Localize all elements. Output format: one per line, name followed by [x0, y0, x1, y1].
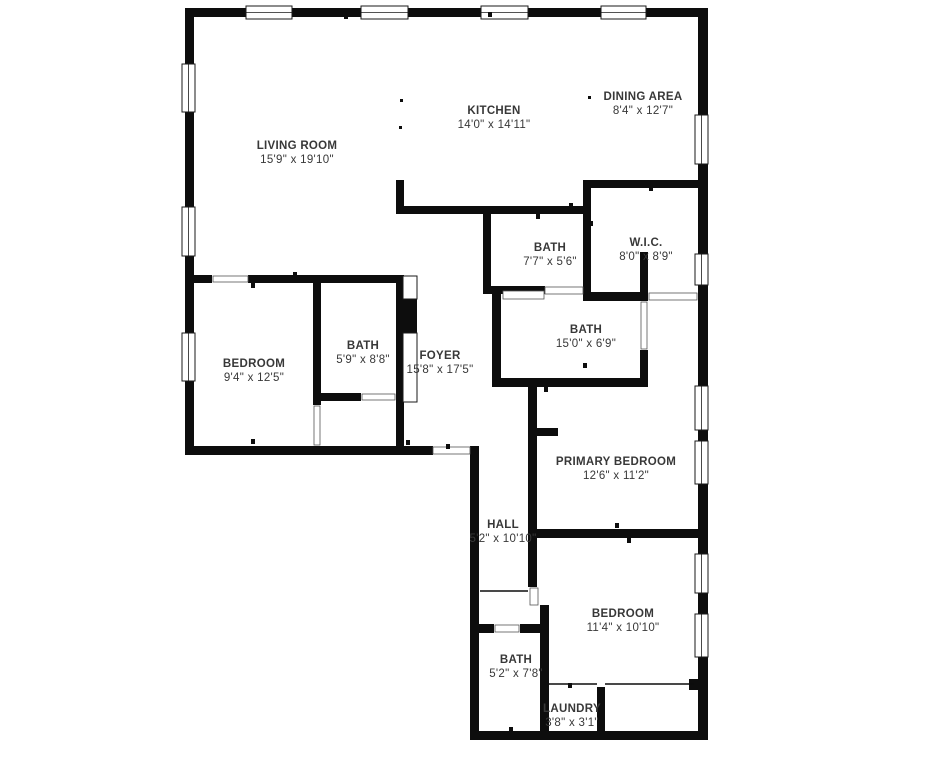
floor-plan-drawing: LIVING ROOM15'9" x 19'10"KITCHEN14'0" x …: [0, 0, 945, 768]
wall-tick: [583, 363, 587, 368]
room-label-foyer: FOYER: [419, 350, 461, 362]
room-dimensions-dining-area: 8'4" x 12'7": [613, 105, 673, 117]
column-dot: [588, 96, 591, 99]
room-dimensions-wic: 8'0" x 8'9": [619, 251, 673, 263]
wall-tick: [569, 203, 573, 208]
wall-segment: [470, 731, 708, 740]
wall-segment: [640, 350, 648, 387]
room-label-bedroom-bottom: BEDROOM: [592, 608, 654, 620]
door-opening: [641, 302, 647, 349]
wall-tick: [406, 440, 410, 445]
wall-tick: [589, 221, 593, 226]
room-dimensions-primary-bedroom: 12'6" x 11'2": [583, 470, 649, 482]
room-dimensions-hall: 5'2" x 10'10": [470, 533, 537, 545]
closet-panel: [403, 276, 417, 299]
wall-segment: [583, 292, 648, 301]
room-label-bath-bottom: BATH: [500, 654, 532, 666]
room-dimensions-bath-bottom: 5'2" x 7'8": [489, 668, 543, 680]
door-opening: [362, 394, 395, 400]
door-opening: [433, 447, 470, 454]
wall-segment: [185, 275, 212, 283]
room-dimensions-bedroom-left: 9'4" x 12'5": [224, 372, 284, 384]
door-opening: [314, 406, 320, 445]
wall-tick: [568, 683, 572, 688]
door-opening: [503, 291, 544, 299]
room-dimensions-bath-left: 5'9" x 8'8": [336, 354, 390, 366]
door-opening: [649, 293, 697, 300]
wall-tick: [474, 647, 478, 652]
room-dimensions-bath-middle: 15'0" x 6'9": [556, 338, 616, 350]
wall-tick: [251, 439, 255, 444]
room-label-bath-left: BATH: [347, 340, 379, 352]
wall-tick: [251, 283, 255, 288]
wall-tick: [649, 186, 653, 191]
room-dimensions-bedroom-bottom: 11'4" x 10'10": [587, 622, 660, 634]
room-label-wic: W.I.C.: [629, 237, 662, 249]
wall-tick: [627, 538, 631, 543]
wall-segment: [528, 538, 537, 587]
wall-tick: [189, 124, 193, 129]
door-opening: [495, 625, 519, 632]
room-label-hall: HALL: [487, 519, 519, 531]
room-label-laundry: LAUNDRY: [543, 703, 601, 715]
wall-segment: [313, 393, 361, 401]
wall-segment: [520, 624, 549, 633]
wall-segment: [248, 275, 404, 283]
floor-plan-page: LIVING ROOM15'9" x 19'10"KITCHEN14'0" x …: [0, 0, 945, 768]
room-dimensions-laundry: 3'8" x 3'1": [545, 717, 599, 729]
wall-segment: [492, 288, 501, 387]
wall-segment: [396, 206, 591, 214]
room-label-dining-area: DINING AREA: [604, 91, 683, 103]
wall-segment: [492, 378, 648, 387]
wall-segment: [583, 180, 708, 188]
wall-segment: [470, 624, 494, 633]
wall-segment: [528, 529, 708, 538]
wall-segment: [185, 446, 433, 455]
column-dot: [400, 99, 403, 102]
wall-tick: [615, 523, 619, 528]
door-opening: [213, 276, 248, 282]
wall-tick: [344, 14, 348, 19]
room-label-bath-upper: BATH: [534, 242, 566, 254]
room-label-bedroom-left: BEDROOM: [223, 358, 285, 370]
room-label-kitchen: KITCHEN: [467, 105, 520, 117]
room-dimensions-foyer: 15'8" x 17'5": [407, 364, 474, 376]
wall-tick: [544, 387, 548, 392]
door-opening: [530, 588, 538, 605]
room-label-bath-middle: BATH: [570, 324, 602, 336]
room-label-primary-bedroom: PRIMARY BEDROOM: [556, 456, 676, 468]
entry-door-leaf: [397, 299, 417, 333]
wall-tick: [293, 272, 297, 277]
wall-tick: [536, 214, 540, 219]
room-dimensions-bath-upper: 7'7" x 5'6": [523, 256, 577, 268]
wall-tick: [531, 460, 535, 465]
column-dot: [399, 126, 402, 129]
room-dimensions-kitchen: 14'0" x 14'11": [458, 119, 531, 131]
wall-tick: [446, 444, 450, 449]
wall-segment: [537, 428, 558, 436]
room-dimensions-living-room: 15'9" x 19'10": [260, 154, 334, 166]
wall-segment: [470, 446, 479, 740]
wall-tick: [509, 727, 513, 732]
wall-segment: [583, 180, 591, 300]
door-opening: [545, 287, 583, 294]
wall-segment: [313, 283, 321, 405]
wall-tick: [488, 12, 492, 17]
wall-tick: [485, 249, 489, 254]
room-label-living-room: LIVING ROOM: [257, 140, 338, 152]
